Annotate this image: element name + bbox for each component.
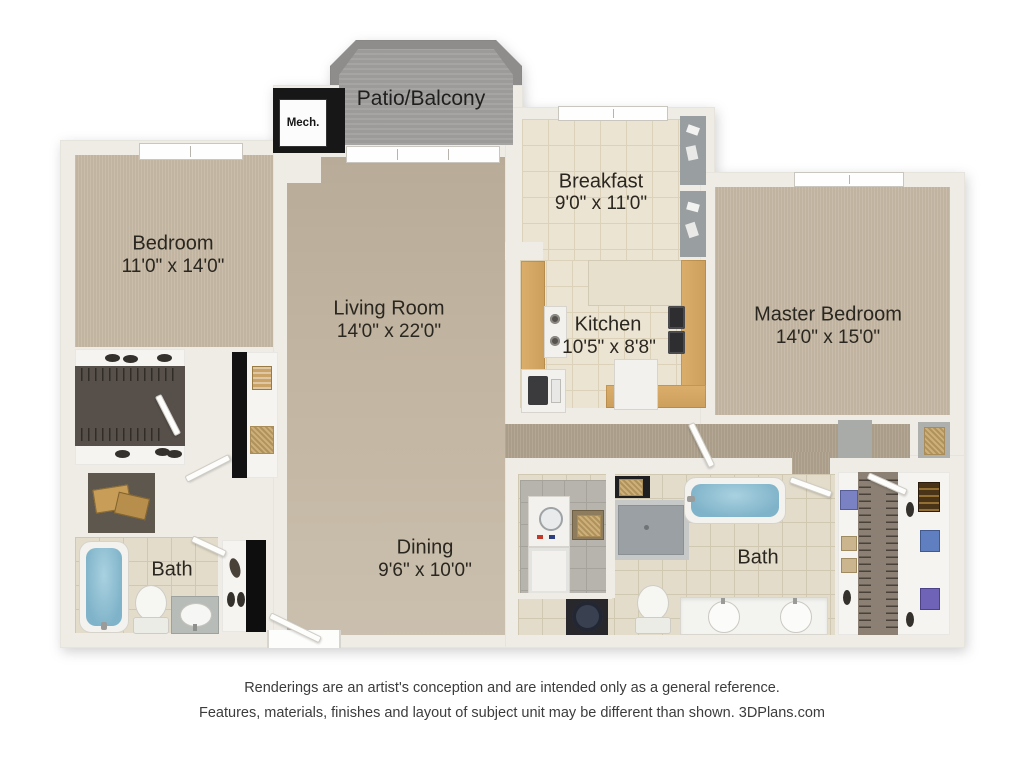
window-master — [794, 172, 904, 187]
shoes — [906, 502, 914, 517]
kitchen-sink-basin — [528, 376, 548, 405]
window-mullion — [849, 175, 850, 184]
wall-stub-kitchen — [505, 242, 543, 260]
towel-stack — [252, 366, 272, 390]
label-bedroom-name: Bedroom — [132, 233, 213, 256]
dish-rack — [551, 379, 561, 403]
window-mullion — [190, 146, 191, 157]
shoes — [906, 612, 914, 627]
water-heater — [572, 601, 603, 632]
kitchen-sink-cabinet — [521, 369, 566, 413]
label-patio: Patio/Balcony — [357, 87, 485, 111]
laundry-basket — [577, 515, 601, 537]
wall-oven — [668, 331, 685, 354]
label-breakfast-name: Breakfast — [559, 171, 643, 194]
double-vanity — [680, 597, 828, 635]
washer — [528, 496, 570, 547]
kitchen-island — [614, 359, 658, 410]
shelf-basket — [619, 479, 643, 496]
pantry-item — [686, 145, 699, 161]
label-kitchen-dims: 10'5" x 8'8" — [562, 337, 656, 359]
cardboard-box — [114, 492, 150, 521]
label-mech: Mech. — [287, 117, 320, 129]
tub-water — [691, 484, 779, 517]
master-closet-carpet — [858, 472, 898, 635]
shoes — [843, 590, 851, 605]
shoes — [105, 354, 120, 362]
toilet-left — [135, 585, 167, 621]
label-dining-name: Dining — [397, 537, 454, 560]
sink-master — [780, 601, 812, 633]
label-bedroom-dims: 11'0" x 14'0" — [122, 256, 225, 278]
pantry-item — [685, 222, 699, 238]
label-master-name: Master Bedroom — [754, 304, 902, 327]
hanging-clothes — [81, 428, 161, 441]
storage-box-blue — [920, 530, 940, 552]
pantry-alcove — [680, 116, 706, 185]
disclaimer: Renderings are an artist's conception an… — [0, 676, 1024, 726]
coat-closet — [222, 540, 266, 632]
window-mullion — [613, 109, 614, 118]
storage-box-blue — [920, 588, 940, 610]
label-living-dims: 14'0" x 22'0" — [337, 321, 441, 343]
bath2-linen-shelf — [610, 476, 650, 498]
stove-burner — [550, 314, 560, 324]
clothes-item — [228, 557, 243, 579]
label-bath-master: Bath — [737, 547, 778, 570]
trunk — [918, 482, 940, 512]
shower — [613, 500, 689, 560]
master-hall-alcove — [838, 420, 872, 458]
bathtub-left — [79, 541, 129, 633]
pantry-item — [686, 202, 700, 213]
shower-drain — [644, 525, 649, 530]
tub-faucet — [687, 496, 695, 502]
shoes — [167, 450, 182, 458]
wall-stub-laundry — [606, 468, 615, 598]
washer-lid — [539, 507, 563, 531]
floorplan-canvas: { "rooms": { "patio": { "name": "Patio/B… — [0, 0, 1024, 768]
utility-closet — [566, 598, 608, 635]
toilet-left-tank — [133, 617, 169, 634]
label-master-dims: 14'0" x 15'0" — [776, 327, 880, 349]
stove-burner — [550, 336, 560, 346]
hamper-alcove — [918, 422, 950, 458]
window-mullion — [397, 149, 398, 160]
storage-box-beige — [841, 536, 857, 551]
wall-stub-utility — [518, 593, 612, 599]
disclaimer-line2: Features, materials, finishes and layout… — [0, 701, 1024, 726]
tub-faucet — [101, 622, 107, 630]
hamper — [924, 427, 945, 455]
pantry-item — [686, 124, 700, 136]
storage-box-beige — [841, 558, 857, 573]
wall-notch-living — [287, 157, 321, 183]
pantry-alcove — [680, 191, 706, 257]
shoes — [237, 592, 245, 607]
linen-closet-living — [232, 352, 278, 478]
window-breakfast — [558, 106, 668, 121]
label-bath-left: Bath — [151, 559, 192, 582]
label-breakfast-dims: 9'0" x 11'0" — [555, 193, 647, 215]
hanging-clothes — [886, 478, 898, 628]
wall-oven — [668, 306, 685, 329]
toilet-master-tank — [635, 617, 671, 634]
hanging-clothes — [859, 478, 871, 628]
label-living-name: Living Room — [333, 298, 444, 321]
storage-box-blue — [840, 490, 858, 510]
wicker-basket — [250, 426, 274, 454]
kitchen-peninsula — [588, 260, 682, 306]
hanging-clothes — [81, 368, 179, 381]
walkin-closet — [75, 349, 185, 465]
label-dining-dims: 9'6" x 10'0" — [378, 560, 472, 582]
washer-knob — [549, 535, 555, 539]
laundry-table — [572, 510, 604, 540]
washer-knob — [537, 535, 543, 539]
window-bedroom — [139, 143, 243, 160]
toilet-master — [637, 585, 669, 621]
closet-back-panel — [232, 352, 247, 478]
window-living — [346, 146, 500, 163]
sink-faucet — [793, 598, 797, 604]
sink-faucet — [193, 624, 197, 631]
master-closet — [838, 472, 950, 635]
vanity-left — [171, 596, 219, 634]
shoes — [115, 450, 130, 458]
label-kitchen-name: Kitchen — [575, 314, 642, 337]
disclaimer-line1: Renderings are an artist's conception an… — [0, 676, 1024, 701]
tub-water — [86, 548, 122, 626]
shoes — [123, 355, 138, 363]
shoes — [157, 354, 172, 362]
bath2-door-threshold — [792, 452, 830, 474]
storage-closet — [88, 473, 155, 533]
walkin-closet-floor — [75, 366, 185, 446]
window-mullion — [448, 149, 449, 160]
bathtub-master — [684, 477, 786, 524]
master-bedroom-floor — [715, 187, 950, 415]
shoes — [227, 592, 235, 607]
sink-faucet — [721, 598, 725, 604]
sink-master — [708, 601, 740, 633]
closet-back-panel — [246, 540, 266, 632]
dryer — [528, 547, 570, 595]
